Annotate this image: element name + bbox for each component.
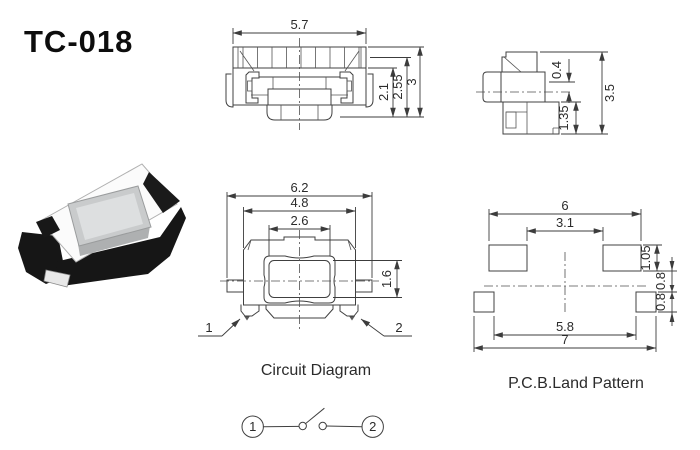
pin2-callout: 2 <box>361 319 412 336</box>
svg-text:1.35: 1.35 <box>556 105 571 130</box>
svg-text:0.8: 0.8 <box>653 293 668 311</box>
svg-text:1.6: 1.6 <box>379 270 394 288</box>
pcb-land-pattern-drawing: 6 3.1 5.8 7 1.05 <box>474 198 677 352</box>
pcb-dim-pad-gap: 3.1 <box>527 215 603 241</box>
pad-top-right <box>603 245 641 271</box>
side-view-drawing: 0.4 1.35 3.5 <box>476 52 617 134</box>
plan-view-drawing: 6.2 4.8 2.6 1.6 1 <box>198 180 412 336</box>
svg-text:3: 3 <box>404 78 419 85</box>
pin1-tip <box>244 316 250 321</box>
circuit-diagram: 1 2 <box>242 409 383 438</box>
side-dim-top-offset: 0.4 <box>549 59 575 103</box>
pin1-callout: 1 <box>198 319 240 336</box>
svg-text:2.55: 2.55 <box>390 74 405 99</box>
page-title: TC-018 <box>24 24 133 59</box>
pcb-dim-pad-height: 1.05 <box>638 245 662 271</box>
pcb-land-pattern-label: P.C.B.Land Pattern <box>508 375 644 392</box>
svg-text:7: 7 <box>561 332 568 347</box>
product-photo <box>18 164 186 287</box>
svg-text:0.8: 0.8 <box>653 272 668 290</box>
svg-text:3.1: 3.1 <box>556 215 574 230</box>
svg-text:6.2: 6.2 <box>290 180 308 195</box>
front-view-drawing: 5.7 2.1 2.55 3 <box>226 17 424 130</box>
svg-text:6: 6 <box>561 198 568 213</box>
pin2-label: 2 <box>395 320 402 335</box>
circuit-diagram-label: Circuit Diagram <box>261 362 371 379</box>
svg-text:4.8: 4.8 <box>290 195 308 210</box>
switch-contact-right <box>319 422 326 429</box>
svg-text:1.05: 1.05 <box>638 245 653 270</box>
pin2-tip <box>349 316 355 321</box>
side-dim-base-height: 1.35 <box>556 102 581 134</box>
technical-drawing-canvas: TC-018 <box>0 0 700 450</box>
svg-text:2.6: 2.6 <box>290 213 308 228</box>
front-view-ribs <box>243 47 359 68</box>
svg-text:3.5: 3.5 <box>602 84 617 102</box>
datasheet-page: TC-018 <box>0 0 700 450</box>
svg-text:2.1: 2.1 <box>376 83 391 101</box>
pad-top-left <box>489 245 527 271</box>
pin1-label: 1 <box>205 320 212 335</box>
svg-text:5.7: 5.7 <box>290 17 308 32</box>
switch-lever <box>306 409 324 424</box>
circuit-terminal-1: 1 <box>249 419 256 434</box>
circuit-terminal-2: 2 <box>369 419 376 434</box>
pad-bottom-left <box>474 292 494 312</box>
svg-text:0.4: 0.4 <box>549 61 564 79</box>
